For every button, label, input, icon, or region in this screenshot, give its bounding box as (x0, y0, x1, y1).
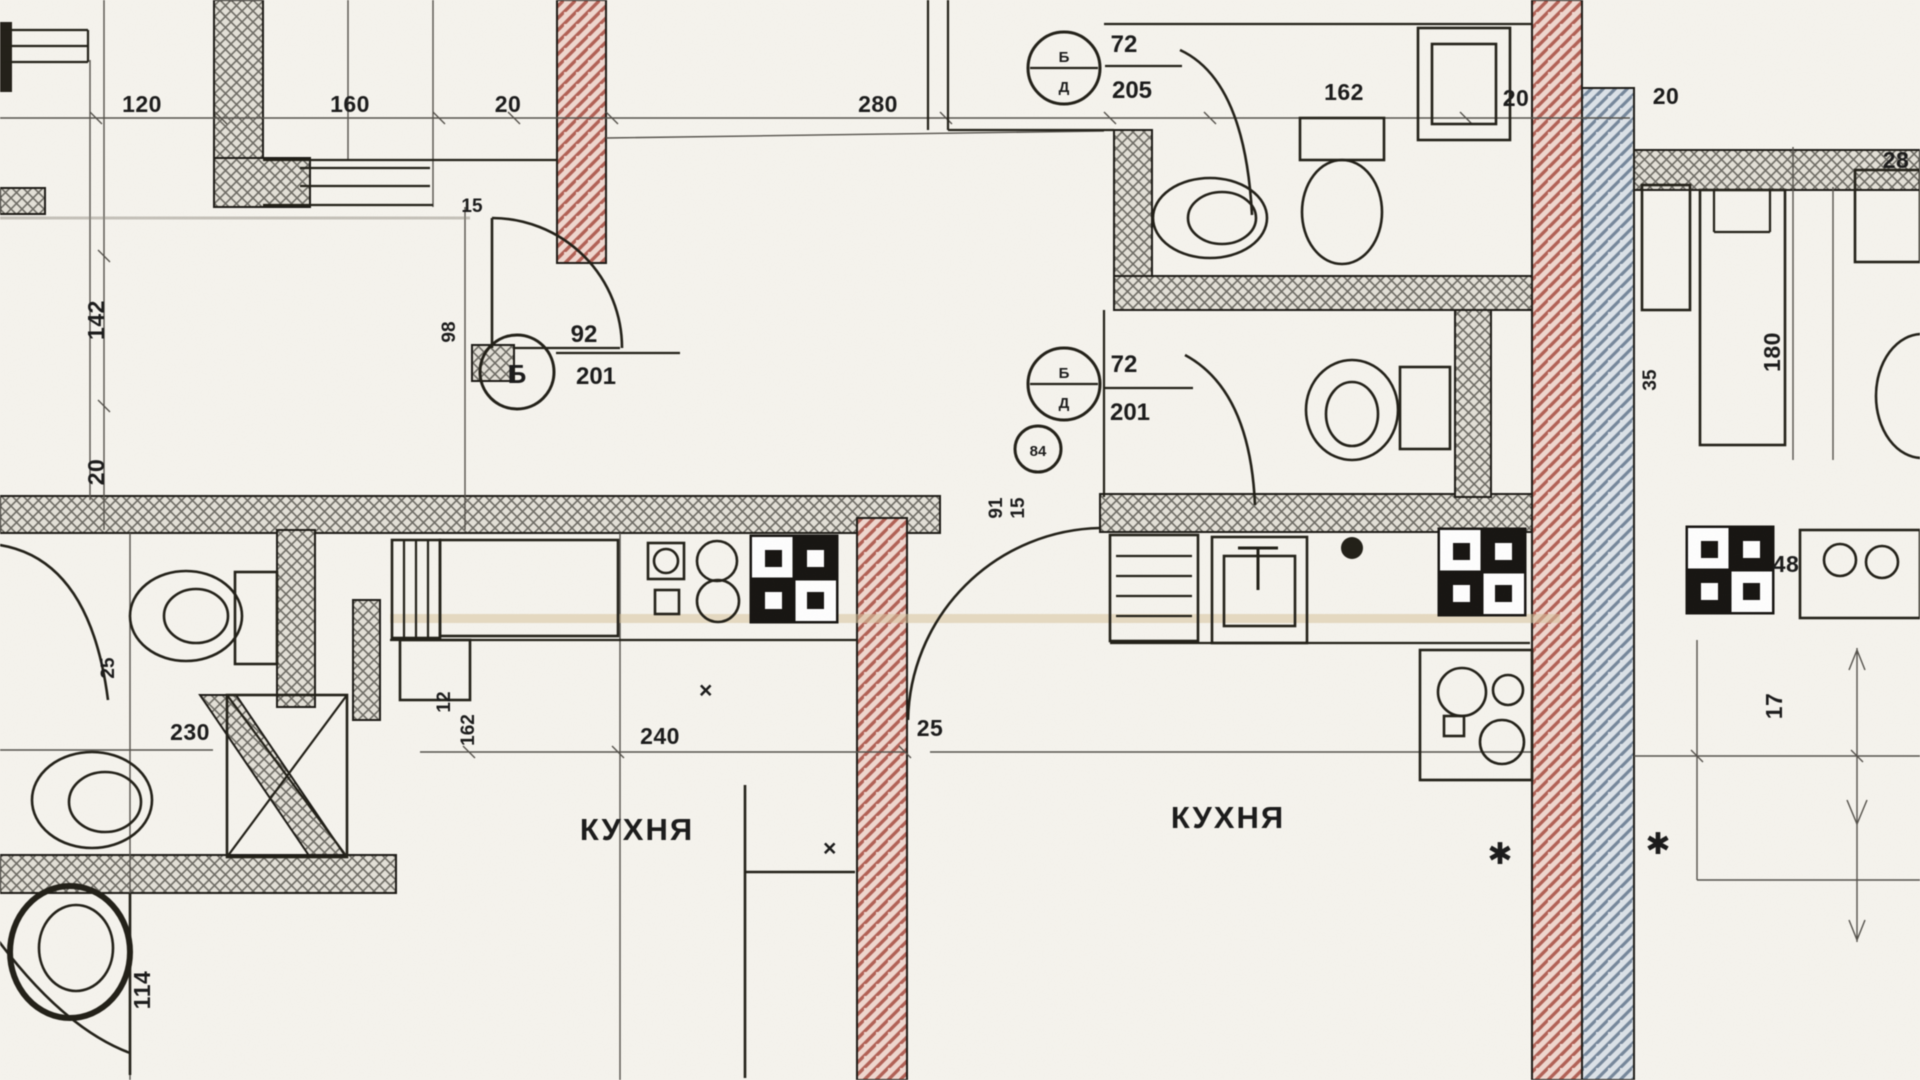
floor-plan-canvas: Б 92 201 Б Д 72 201 84 Б Д 72 205 КУХНЯ … (0, 0, 1920, 1080)
scan-noise-overlay (0, 0, 1920, 1080)
